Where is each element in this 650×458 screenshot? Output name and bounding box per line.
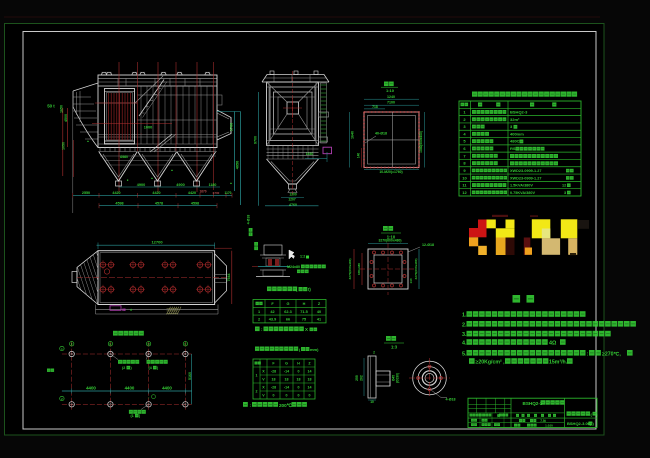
svg-text:4-Ø18: 4-Ø18 [446,397,456,401]
svg-text:1640: 1640 [306,152,314,156]
svg-text:1000: 1000 [144,125,152,129]
svg-text:-28: -28 [271,370,276,374]
svg-text:2.: 2. [462,322,467,328]
svg-text:62.3: 62.3 [284,310,291,314]
svg-text:3: 3 [564,191,566,195]
svg-text:0: 0 [309,394,311,398]
svg-text:▲: ▲ [230,181,233,185]
svg-text:0: 0 [298,394,300,398]
svg-text:BSHQ2-3: BSHQ2-3 [523,401,543,406]
svg-text:40-Ø18: 40-Ø18 [375,132,387,136]
svg-text:▮▮: ▮▮ [122,308,126,312]
svg-text:1180: 1180 [209,183,217,187]
svg-text:18: 18 [297,378,301,382]
svg-text:12: 12 [562,184,566,188]
svg-text:≥270℃,: ≥270℃, [602,350,621,357]
svg-text:0: 0 [298,370,300,374]
svg-text:1: 1 [258,310,260,314]
svg-text:-14: -14 [284,370,289,374]
svg-text:71.5: 71.5 [300,310,307,314]
svg-text:7544: 7544 [227,274,231,282]
svg-text:4598: 4598 [115,202,123,206]
svg-text:1240: 1240 [387,95,395,99]
svg-text:4420: 4420 [152,191,160,195]
svg-text:10: 10 [462,175,467,180]
svg-text:40: 40 [317,310,321,314]
svg-text:4760: 4760 [289,203,297,207]
svg-text:480C: 480C [510,139,520,144]
svg-text:1:10: 1:10 [386,88,395,93]
svg-text:↑: ↑ [148,396,150,400]
svg-text:200℃: 200℃ [279,402,293,408]
svg-text:255: 255 [355,375,359,381]
svg-text:1040(600x400): 1040(600x400) [419,131,423,153]
svg-text:mm): mm) [310,347,319,352]
svg-text:1640: 1640 [351,131,355,139]
svg-text:3.: 3. [462,332,467,338]
svg-text:4500: 4500 [64,114,68,122]
svg-text:2: 2 [258,318,260,322]
svg-text:18: 18 [285,378,289,382]
svg-text:(4: (4 [149,366,152,370]
svg-text:12700: 12700 [151,239,163,244]
svg-text:9700: 9700 [253,136,257,144]
svg-text:4050: 4050 [235,161,239,169]
svg-text:▲: ▲ [171,168,174,172]
svg-text:-28: -28 [271,386,276,390]
svg-text:42: 42 [270,310,274,314]
svg-text:3700: 3700 [229,123,233,131]
svg-text:2550: 2550 [82,191,90,195]
svg-text:5160: 5160 [188,372,192,380]
svg-text:718: 718 [372,105,378,109]
svg-text:6700: 6700 [213,191,220,195]
svg-text:XWD23-0909-1.27: XWD23-0909-1.27 [510,169,541,173]
svg-text:D: D [148,342,150,346]
svg-text:4900: 4900 [137,183,145,187]
svg-text:7.5t: 7.5t [540,419,546,423]
svg-text:G: G [285,362,288,366]
svg-text:1050: 1050 [62,142,66,150]
svg-text:66: 66 [286,318,290,322]
svg-text:4420: 4420 [188,191,196,195]
svg-text:15m³/h.: 15m³/h. [549,359,568,365]
svg-text:1.5KVA/380V: 1.5KVA/380V [510,184,533,188]
svg-text:12: 12 [462,190,467,195]
svg-text:1: 1 [256,374,258,378]
svg-text:50 t: 50 t [47,104,55,109]
svg-text:1:100: 1:100 [545,423,553,427]
svg-text:≥20Kg/cm² ,: ≥20Kg/cm² , [476,359,506,365]
svg-text:▲: ▲ [151,176,154,180]
svg-text:41: 41 [317,318,321,322]
svg-text:4900: 4900 [176,183,184,187]
svg-text:(2: (2 [122,366,125,370]
svg-text:4598: 4598 [191,202,199,206]
svg-text:F: F [71,342,73,346]
svg-text:18: 18 [308,378,312,382]
svg-text:4-Ø18: 4-Ø18 [247,215,251,225]
svg-text:1200: 1200 [289,193,297,197]
svg-text:4400: 4400 [162,385,172,390]
svg-text:(Ø190): (Ø190) [396,373,400,383]
svg-text:H: H [297,362,300,366]
svg-text:0: 0 [286,394,288,398]
svg-text:140: 140 [356,153,360,159]
svg-text:1.: 1. [462,313,467,319]
svg-text:1207: 1207 [288,198,296,202]
svg-text:4.: 4. [462,341,467,347]
svg-text:5.: 5. [462,351,467,357]
svg-text:(1: (1 [131,414,134,418]
svg-text:140: 140 [409,278,413,283]
svg-text:M24x80: M24x80 [287,265,300,269]
svg-text:1670: 1670 [199,190,206,194]
svg-text:2: 2 [256,390,258,394]
svg-text:0.75KVA/380V: 0.75KVA/380V [510,191,536,195]
svg-text:▲: ▲ [129,308,132,312]
svg-text:10: 10 [370,400,374,404]
svg-text:G: G [287,302,290,306]
svg-text:BSHQ2-3.00(: BSHQ2-3.00( [567,421,592,426]
svg-text:1:3: 1:3 [391,345,398,350]
svg-text:E: E [109,342,111,346]
svg-text:XWD23-0909-1.27: XWD23-0909-1.27 [510,176,541,180]
svg-text:RS: RS [510,146,516,151]
svg-text:-14: -14 [284,386,289,390]
svg-text:4400: 4400 [86,385,96,390]
svg-text:4420: 4420 [112,191,120,195]
svg-text:1650: 1650 [60,105,64,113]
svg-text:X: X [305,327,308,332]
svg-text:0: 0 [273,394,275,398]
svg-text:1:2: 1:2 [300,255,305,259]
svg-text:18: 18 [272,378,276,382]
svg-text:10-M20(=1760): 10-M20(=1760) [379,170,402,174]
svg-text:3270(600x480): 3270(600x480) [348,259,352,280]
svg-text:1170: 1170 [225,191,232,195]
svg-text:BSHQ2-3: BSHQ2-3 [510,110,528,115]
svg-text:600x480: 600x480 [357,263,361,275]
svg-text:4Ω: 4Ω [549,341,557,347]
svg-text:14: 14 [308,386,312,390]
svg-text:C: C [184,342,186,346]
svg-text:2: 2 [373,351,375,355]
svg-text:H: H [303,302,306,306]
svg-text:400mm: 400mm [510,131,524,136]
svg-text:14: 14 [308,370,312,374]
svg-text:75: 75 [302,318,306,322]
svg-text:4400: 4400 [125,385,135,390]
svg-text:4578: 4578 [155,202,163,206]
svg-text:3270(600x480): 3270(600x480) [414,259,418,280]
svg-text:202: 202 [360,375,364,381]
svg-text:Ø360: Ø360 [120,155,128,159]
svg-text:0: 0 [298,386,300,390]
svg-text:43.9: 43.9 [269,318,276,322]
svg-text:7100: 7100 [387,101,395,105]
svg-text::: : [587,351,589,357]
svg-text:3270(600x480): 3270(600x480) [378,239,401,243]
svg-text:12-Ø18: 12-Ø18 [422,243,434,247]
svg-text:32m²: 32m² [510,117,520,122]
svg-text:▲: ▲ [87,139,90,143]
